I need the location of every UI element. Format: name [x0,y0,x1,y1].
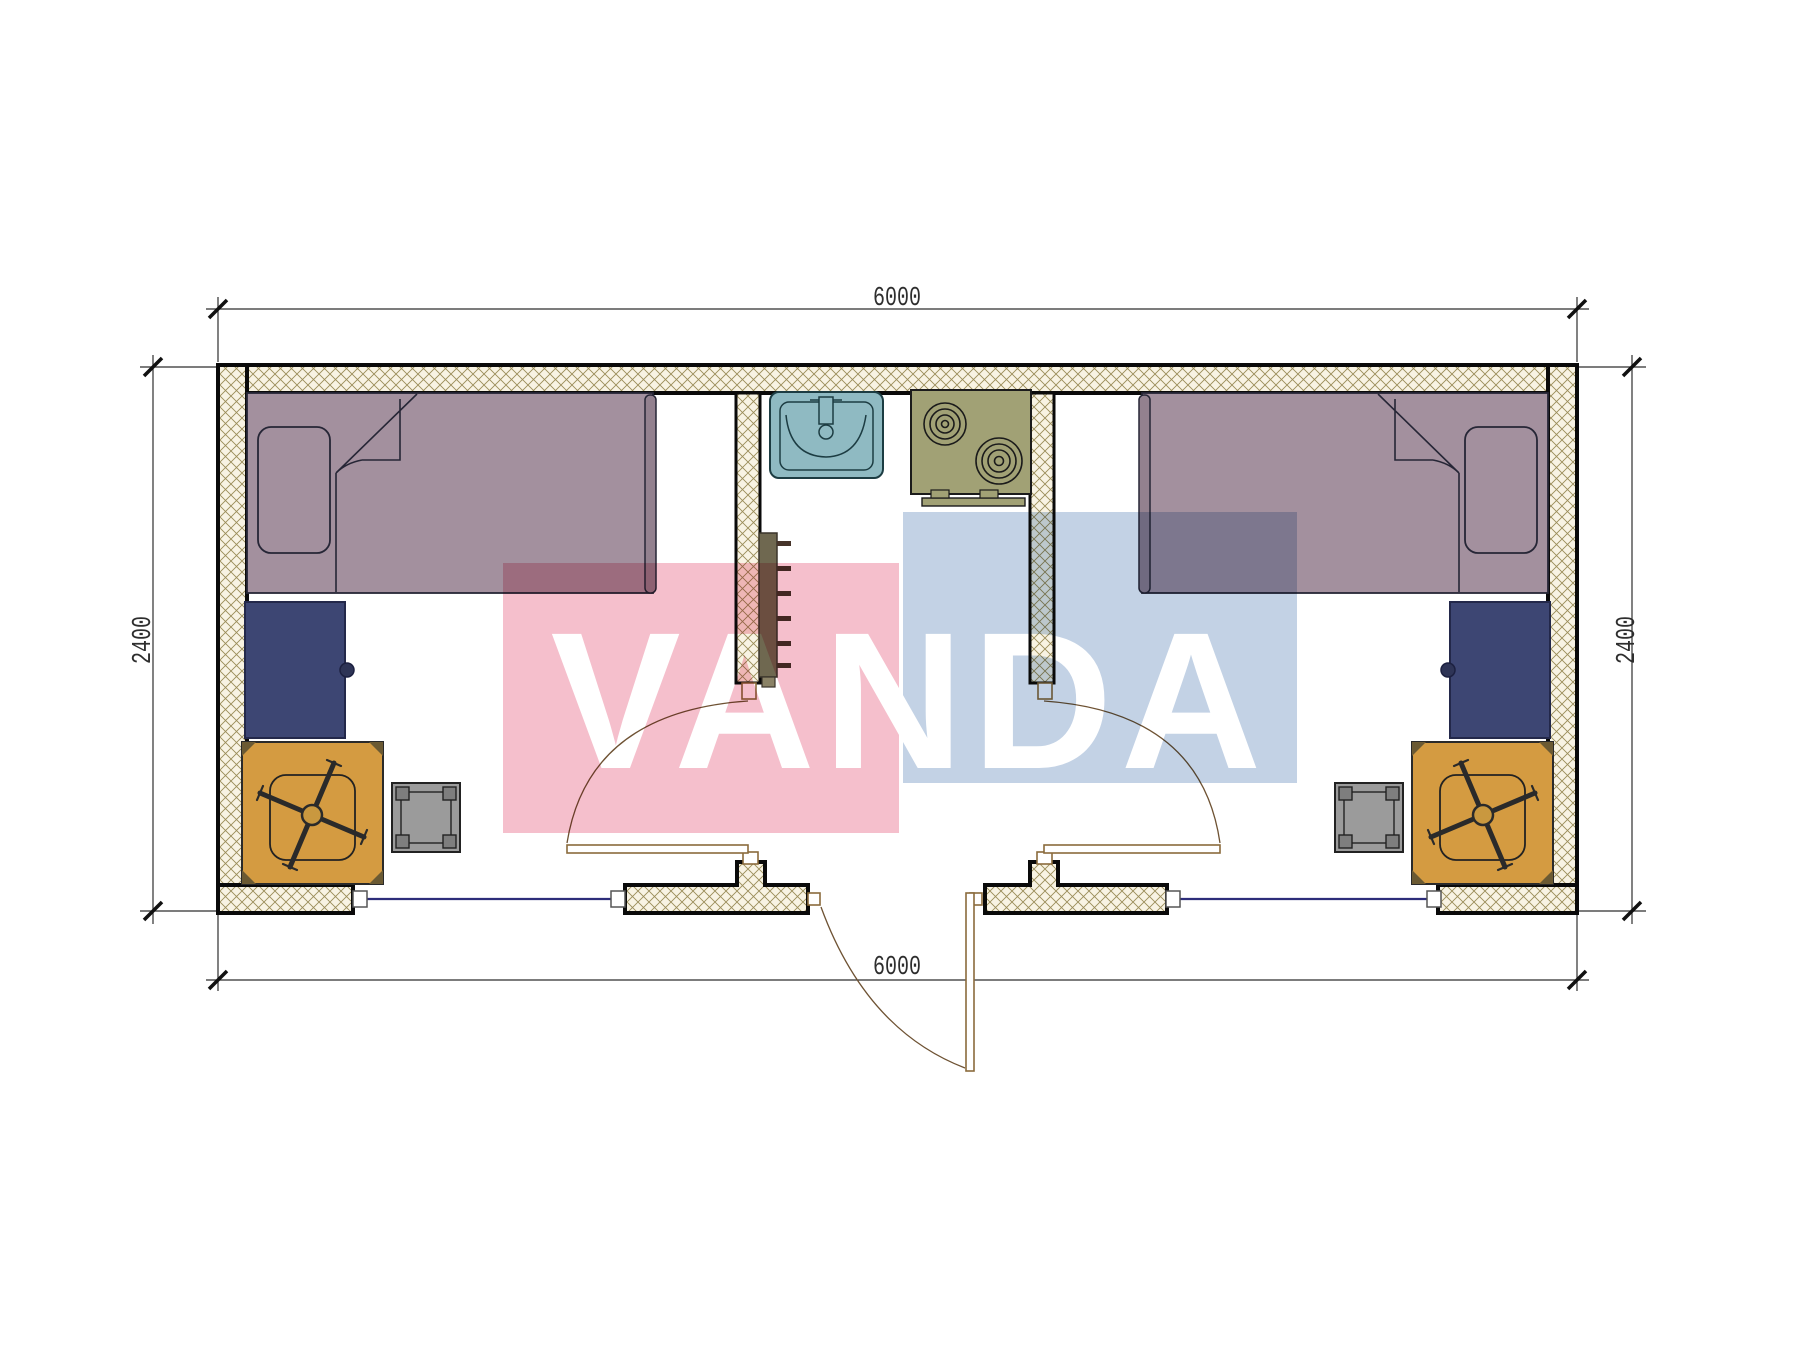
stool-left [392,783,460,852]
wall-bottom-right-corner [1438,885,1577,913]
door-left-leaf [567,845,748,853]
door-right-leaf [1044,845,1220,853]
stove-handle-bar [922,498,1025,506]
wall-bottom-left-corner [218,885,353,913]
floor-plan-drawing: 6000 6000 2400 2400 [0,0,1800,1350]
dim-text-top: 6000 [873,284,921,314]
dim-text-right: 2400 [1613,616,1643,664]
dim-text-bottom: 6000 [873,953,921,983]
entrance-jamb-left [808,893,820,905]
sink [770,392,883,478]
dim-text-left: 2400 [129,616,159,664]
sink-faucet-body [819,397,833,424]
desk-left-knob [340,663,354,677]
entrance-door-leaf [966,893,974,1071]
entrance-door-swing-arc [821,907,965,1068]
sink-drain [819,425,833,439]
chair-right [1412,742,1553,884]
desk-right-knob [1441,663,1455,677]
bed-left-pillow [258,427,330,553]
wall-bottom-t-right [985,862,1167,913]
watermark-text: VANDA [551,592,1270,810]
chair-left [242,742,383,884]
floor-plan-page: 6000 6000 2400 2400 [0,0,1800,1350]
stove [911,390,1031,506]
wall-bottom-t-left [625,862,808,913]
desk-right [1441,602,1550,738]
stool-right [1335,783,1403,852]
wall-top [218,365,1577,393]
bed-right-pillow [1465,427,1537,553]
desk-left [245,602,354,738]
